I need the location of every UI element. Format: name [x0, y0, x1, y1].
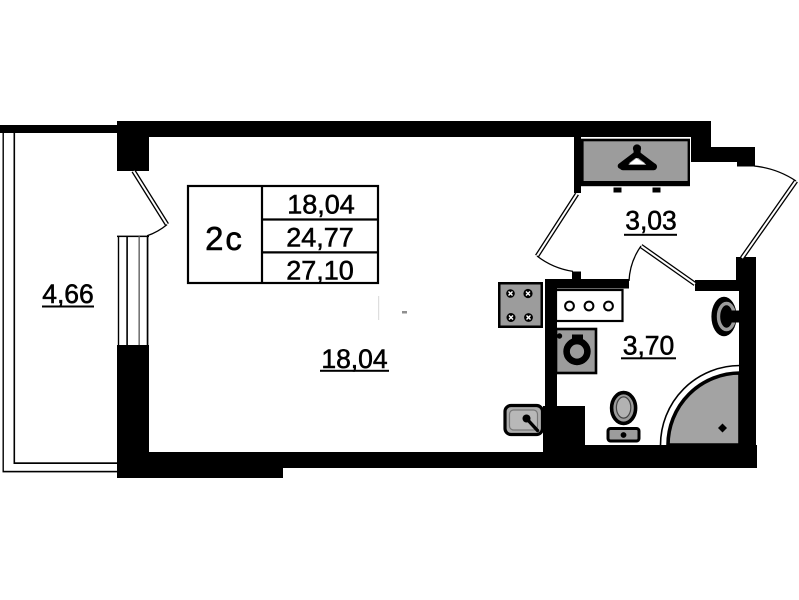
svg-text:18,04: 18,04 — [287, 190, 355, 220]
svg-text:18,04: 18,04 — [321, 344, 387, 374]
svg-text:3,03: 3,03 — [625, 206, 677, 236]
svg-text:24,77: 24,77 — [286, 223, 354, 253]
svg-text:3,70: 3,70 — [623, 331, 675, 361]
svg-text:4,66: 4,66 — [42, 279, 94, 309]
svg-text:27,10: 27,10 — [286, 256, 354, 286]
svg-text:2с: 2с — [205, 220, 244, 257]
